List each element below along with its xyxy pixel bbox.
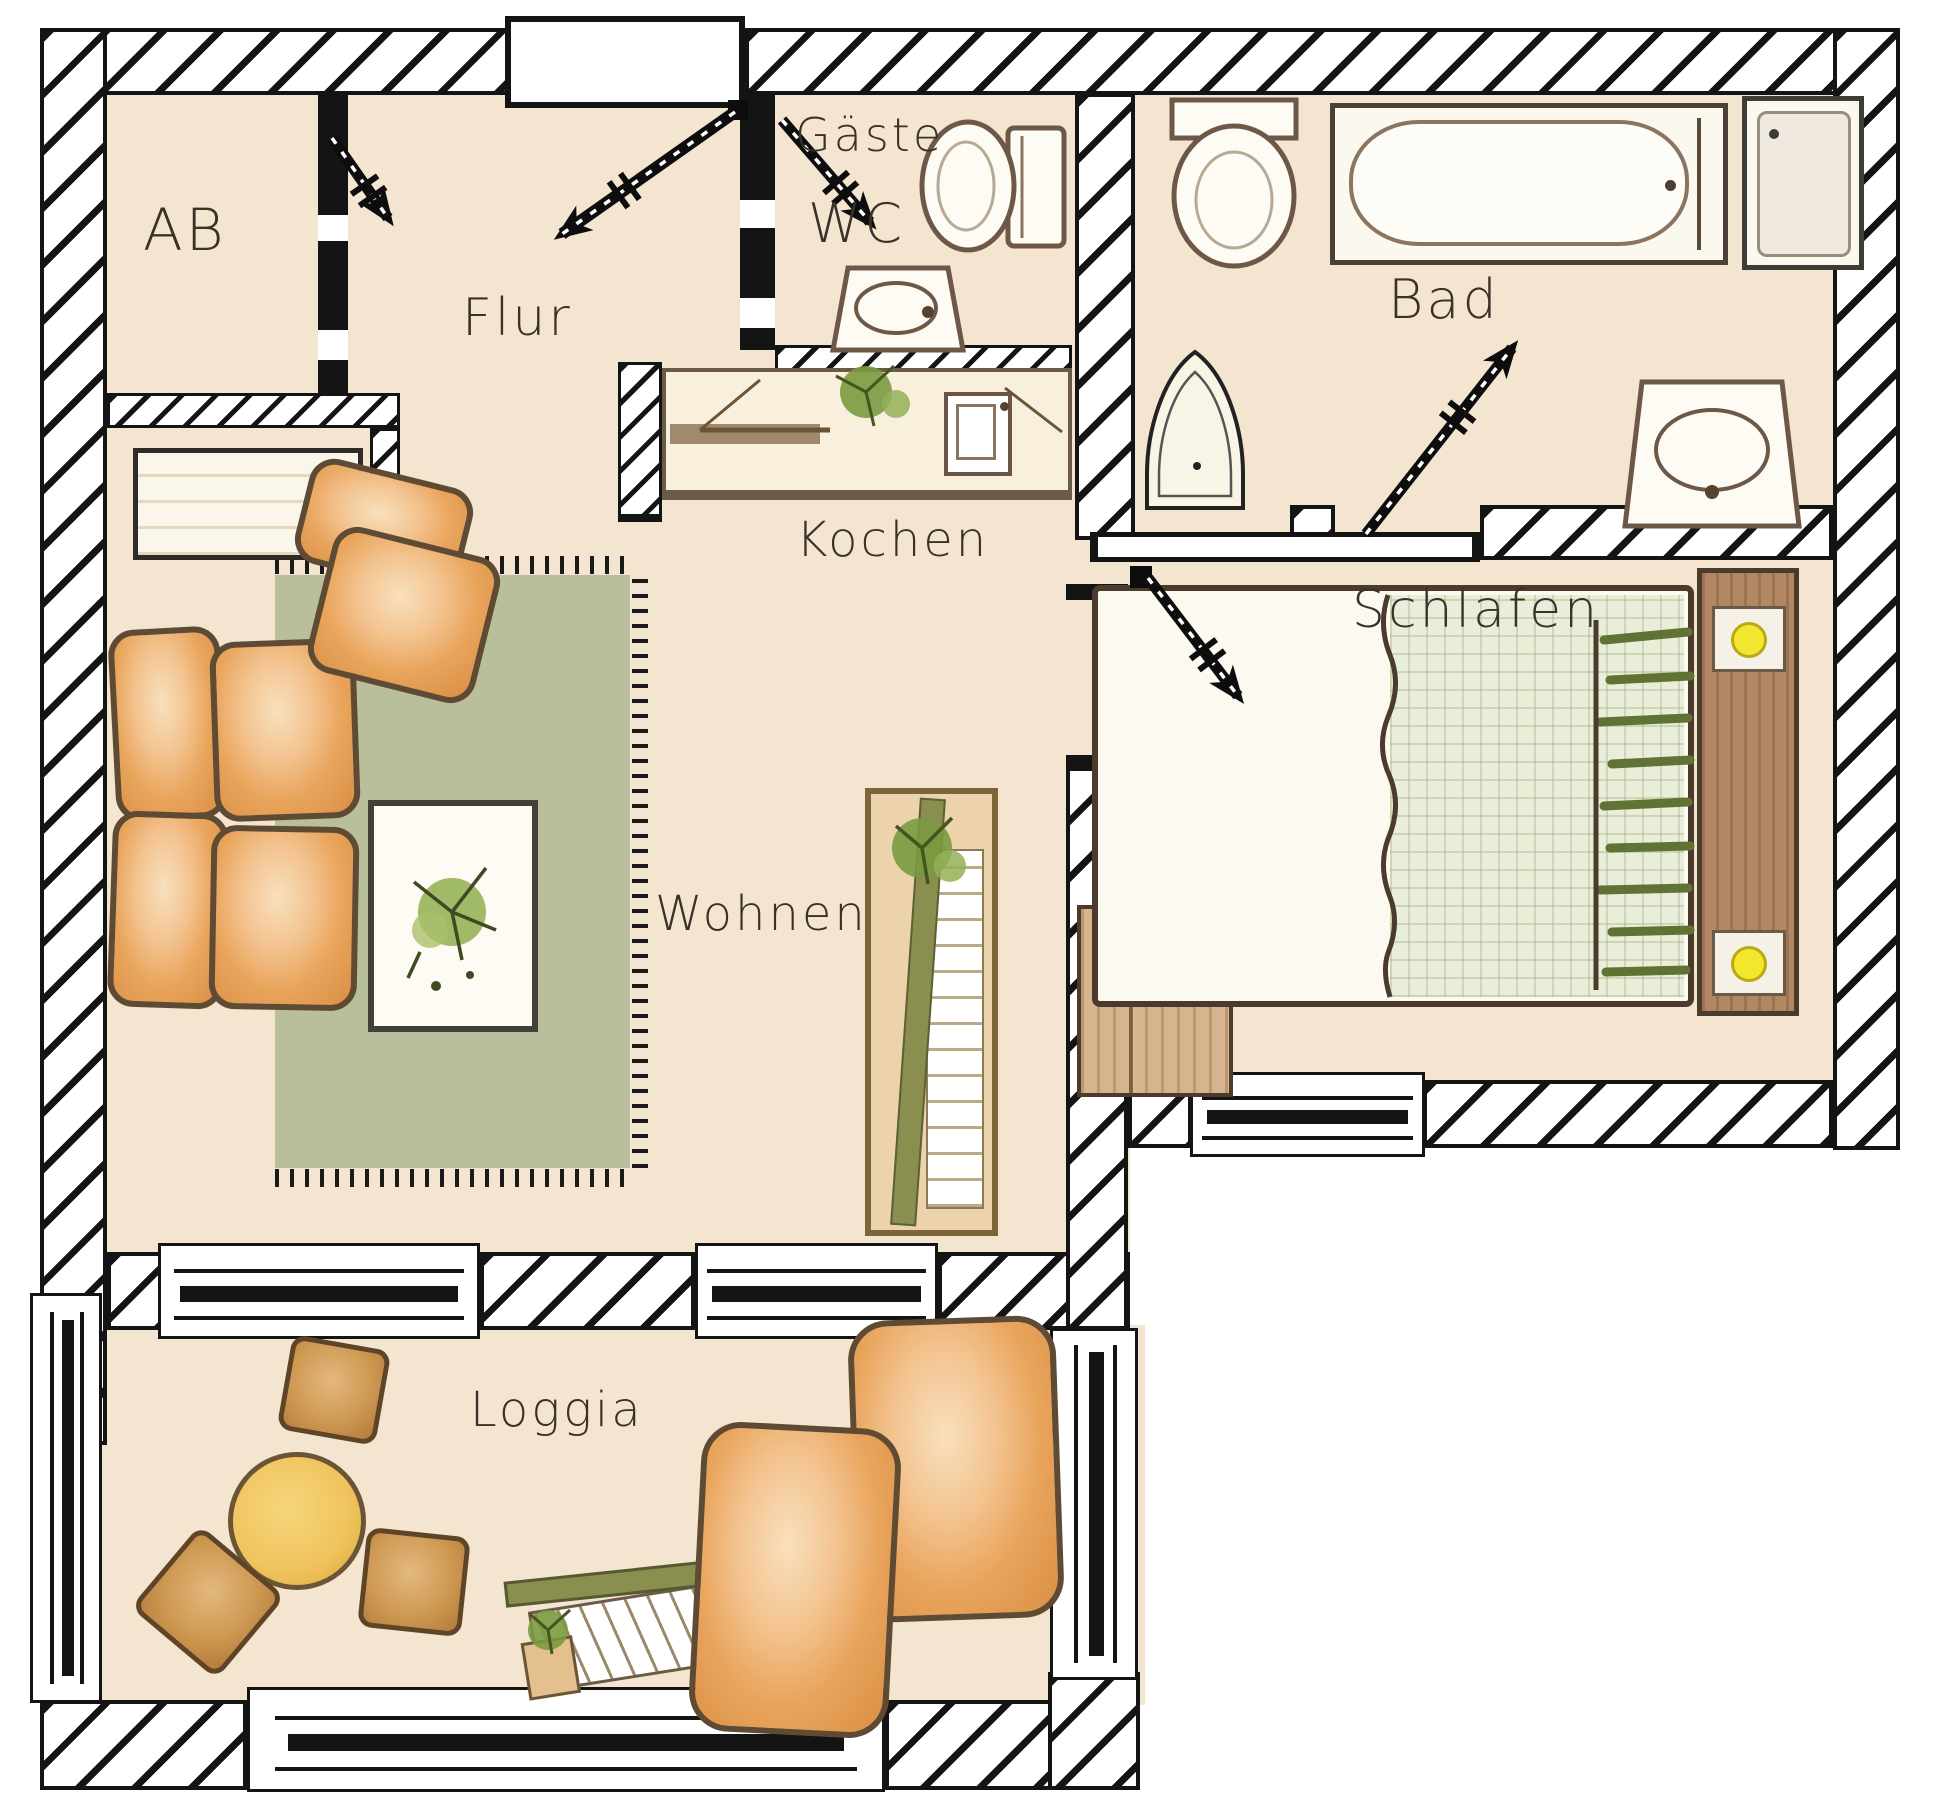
kitchen-plant bbox=[700, 366, 1062, 432]
wc-sink bbox=[833, 268, 963, 350]
floor-plan: AB Flur Gäste WC Bad Kochen Wohnen Schla… bbox=[0, 0, 1940, 1818]
door-arrow-bad bbox=[1366, 348, 1512, 534]
door-arrow-schlafen bbox=[1130, 566, 1238, 696]
label-wohnen: Wohnen bbox=[655, 886, 868, 942]
coffee-table-plant bbox=[408, 868, 496, 991]
label-bad: Bad bbox=[1388, 268, 1500, 331]
label-flur: Flur bbox=[462, 288, 573, 348]
bed-details bbox=[1382, 595, 1690, 997]
label-gaeste: Gäste bbox=[795, 108, 944, 162]
label-loggia: Loggia bbox=[470, 1382, 644, 1438]
bad-washbasin bbox=[1625, 382, 1799, 526]
lounger-plant bbox=[528, 1610, 570, 1654]
bad-toilet bbox=[1172, 100, 1296, 266]
label-kochen: Kochen bbox=[796, 512, 989, 568]
label-ab: AB bbox=[143, 196, 227, 264]
label-wc: WC bbox=[808, 192, 905, 255]
plan-overlay bbox=[0, 0, 1940, 1818]
door-arrow-entrance bbox=[562, 100, 748, 234]
etagere-plant bbox=[892, 818, 966, 884]
bad-arch-basin bbox=[1147, 352, 1243, 508]
door-arrow-ab bbox=[332, 138, 388, 218]
label-schlafen: Schlafen bbox=[1352, 580, 1600, 640]
